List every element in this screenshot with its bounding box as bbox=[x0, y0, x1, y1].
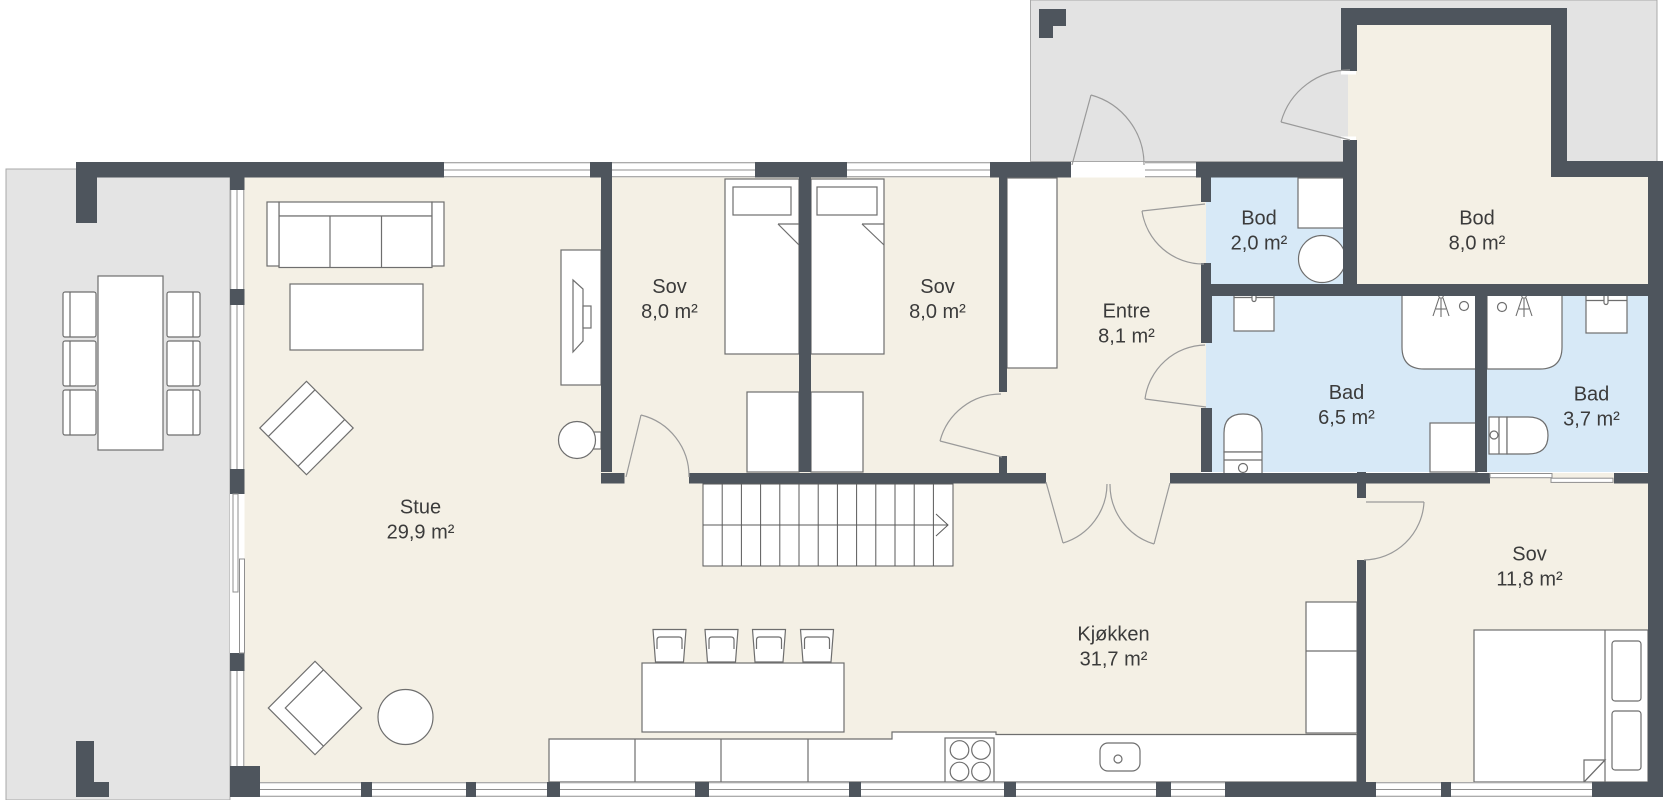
svg-text:8,0 m²: 8,0 m² bbox=[641, 301, 698, 323]
svg-text:Bad: Bad bbox=[1574, 384, 1610, 406]
svg-text:Stue: Stue bbox=[400, 497, 441, 519]
svg-text:Sov: Sov bbox=[652, 276, 686, 298]
svg-text:31,7 m²: 31,7 m² bbox=[1080, 649, 1148, 671]
svg-text:6,5 m²: 6,5 m² bbox=[1318, 407, 1375, 429]
svg-text:Bad: Bad bbox=[1329, 382, 1365, 404]
svg-text:Sov: Sov bbox=[920, 276, 954, 298]
svg-text:11,8 m²: 11,8 m² bbox=[1496, 569, 1563, 591]
svg-text:8,0 m²: 8,0 m² bbox=[1449, 233, 1506, 255]
svg-text:8,1 m²: 8,1 m² bbox=[1098, 326, 1155, 348]
svg-text:Bod: Bod bbox=[1459, 208, 1495, 230]
svg-text:Entre: Entre bbox=[1103, 301, 1151, 323]
svg-text:Kjøkken: Kjøkken bbox=[1077, 624, 1149, 646]
svg-text:3,7 m²: 3,7 m² bbox=[1563, 409, 1620, 431]
svg-text:2,0 m²: 2,0 m² bbox=[1231, 233, 1288, 255]
svg-text:29,9 m²: 29,9 m² bbox=[387, 522, 455, 544]
svg-text:Sov: Sov bbox=[1512, 544, 1546, 566]
svg-text:Bod: Bod bbox=[1241, 208, 1277, 230]
svg-text:8,0 m²: 8,0 m² bbox=[909, 301, 966, 323]
